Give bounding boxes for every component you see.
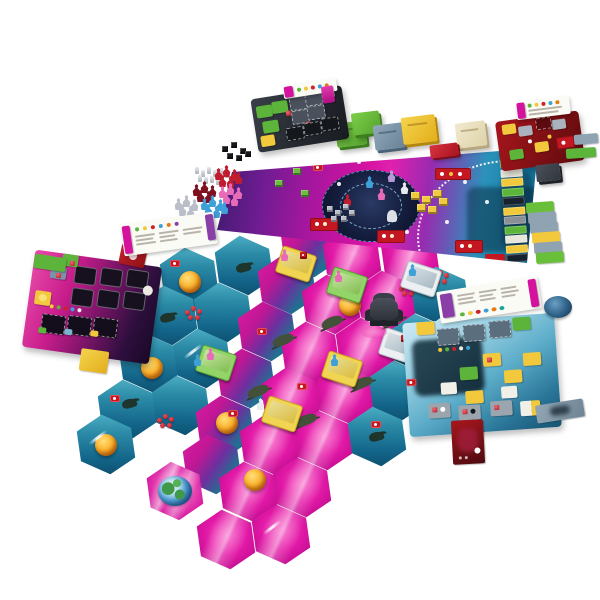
card bbox=[536, 251, 565, 264]
market-card-fan bbox=[0, 0, 600, 600]
board-game-product-photo bbox=[0, 0, 600, 600]
